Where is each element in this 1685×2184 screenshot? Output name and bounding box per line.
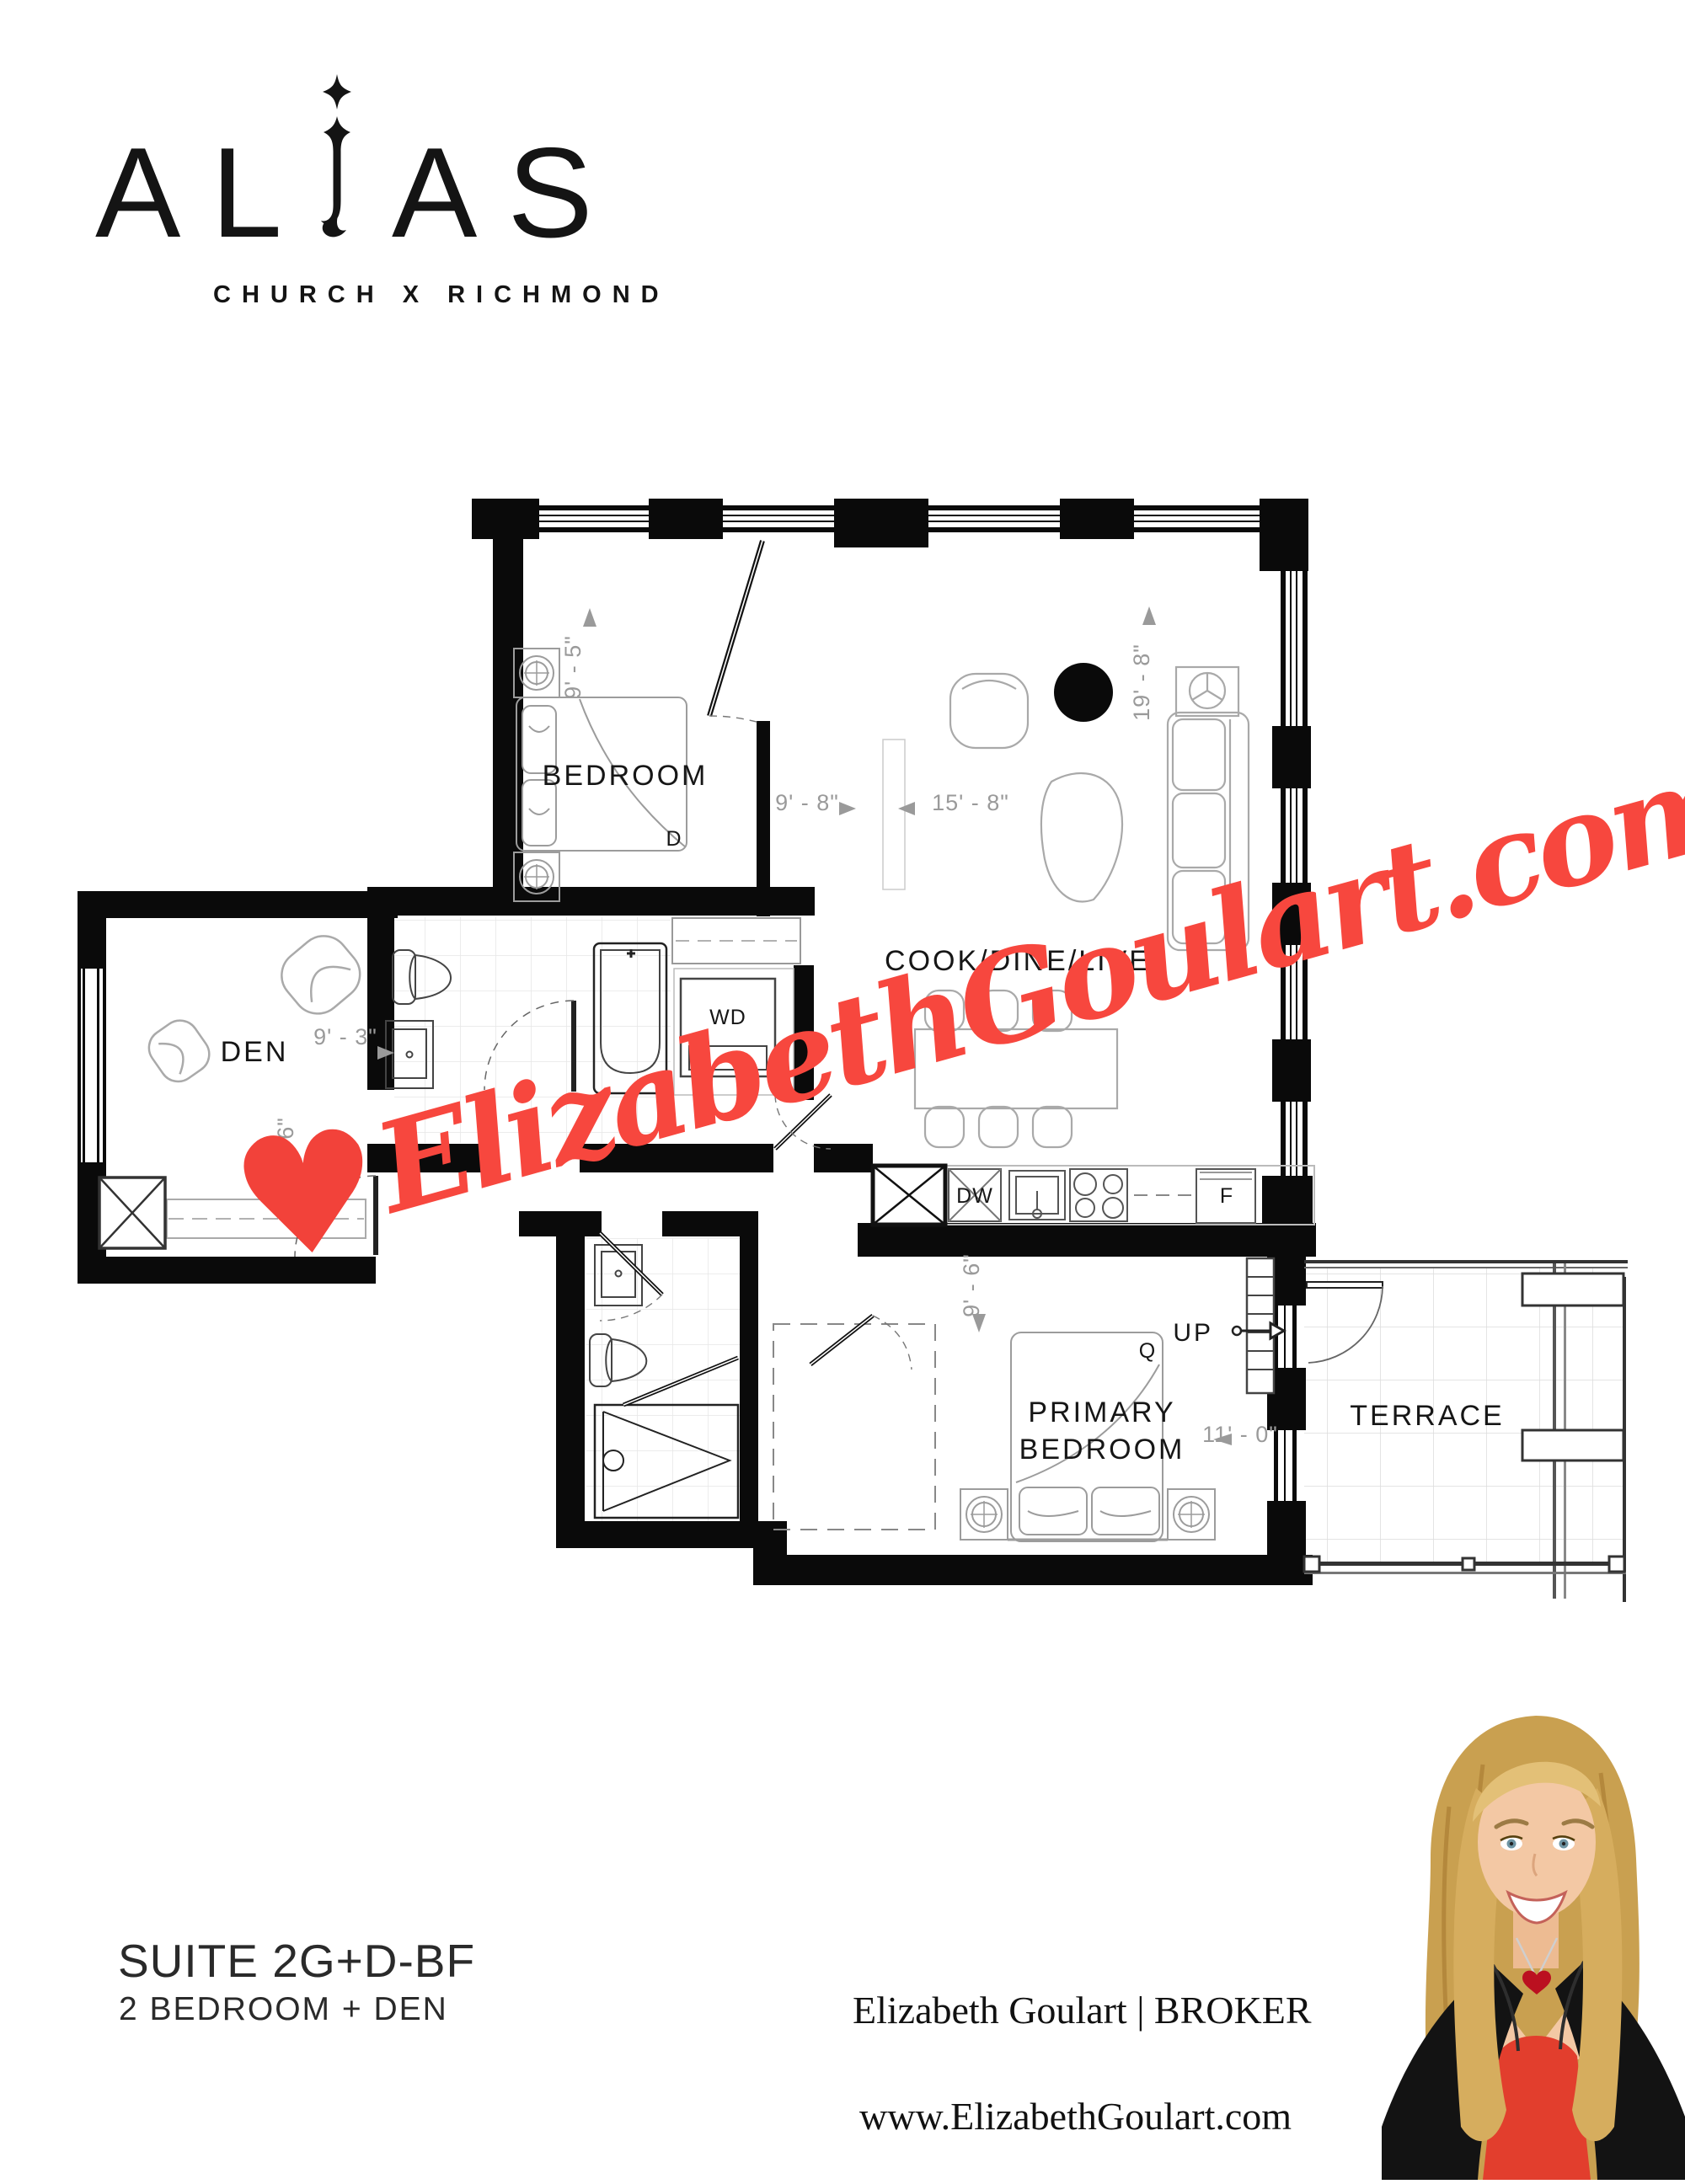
armchair [950,674,1028,748]
dining-chair [979,1107,1018,1147]
dim-living-depth: 19' - 8" [1129,643,1154,721]
kitchen [873,1166,1314,1225]
dim-bedroom-depth: 9' - 5" [560,635,586,699]
dim-den-width: 9' - 3" [313,1024,377,1049]
dim-bedroom-width: 9' - 8" [775,790,839,815]
den-window [81,969,103,1162]
primary-label-2: BEDROOM [1019,1434,1185,1466]
suite-code: SUITE 2G+D-BF [118,1934,475,1988]
rug-shape [1041,773,1122,901]
agent-name: Elizabeth Goulart | BROKER [853,1988,1312,2032]
dw-label: DW [956,1184,993,1208]
primary-closet [773,1324,935,1530]
double-bed-label: D [666,827,682,851]
broker-portrait-illustration [1382,1689,1685,2180]
queen-bed-label: Q [1139,1339,1156,1363]
dim-primary-depth: 9' - 6" [959,1253,984,1317]
terrace-label: TERRACE [1350,1400,1504,1432]
heart-watermark-icon: ♥ [224,1106,388,1285]
broker-photo [1382,1689,1685,2180]
dim-living-width: 15' - 8" [932,790,1009,815]
dining-chair [925,1107,964,1147]
bedroom-room [514,541,905,901]
primary-label-1: PRIMARY [1028,1396,1175,1428]
column-circle [1054,663,1113,722]
up-label: UP [1173,1319,1213,1347]
bedroom-label: BEDROOM [543,760,709,792]
fridge-label: F [1220,1184,1233,1208]
dining-chair [1033,1107,1072,1147]
den-chair-1 [271,926,370,1024]
agent-website: www.ElizabethGoulart.com [859,2094,1292,2139]
den-label: DEN [221,1036,289,1068]
den-chair-2 [142,1013,217,1089]
suite-type: 2 BEDROOM + DEN [119,1991,448,2028]
dim-primary-width: 11' - 0" [1202,1422,1278,1447]
